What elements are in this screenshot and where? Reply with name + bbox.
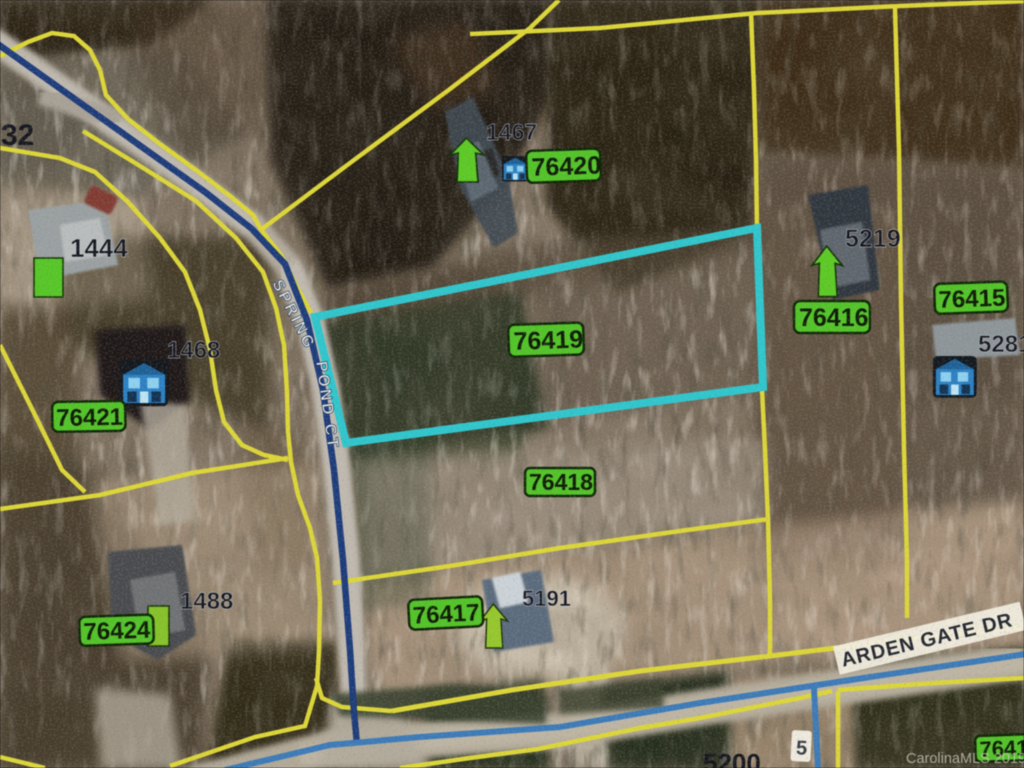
svg-text:CarolinaMLS 2019: CarolinaMLS 2019 xyxy=(906,751,1024,767)
